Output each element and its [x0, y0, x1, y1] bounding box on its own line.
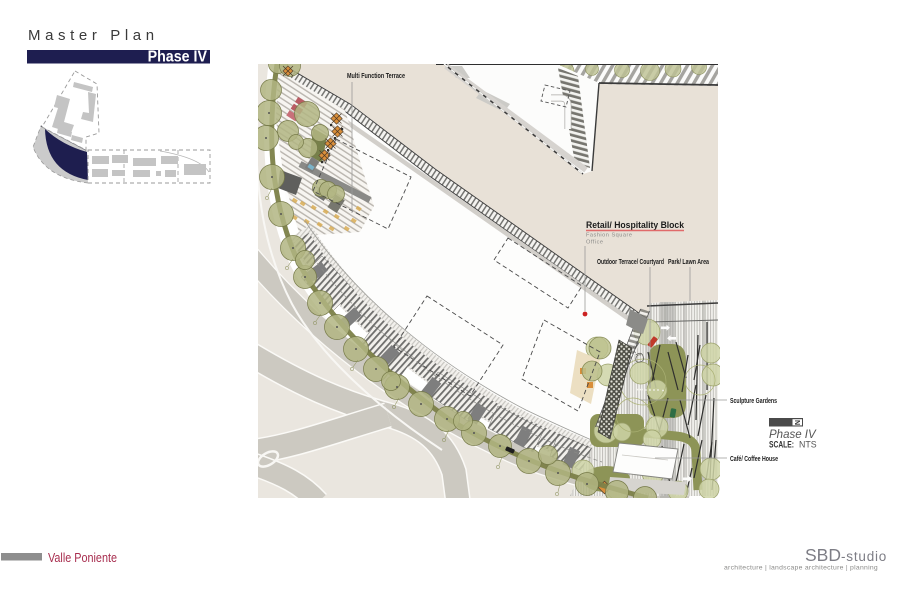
svg-text:Fashion Square: Fashion Square — [586, 233, 633, 239]
svg-text:Park/ Lawn Area: Park/ Lawn Area — [668, 257, 710, 266]
svg-text:NTS: NTS — [799, 440, 817, 450]
svg-text:Retail/ Hospitality Block: Retail/ Hospitality Block — [586, 220, 685, 230]
svg-text:Valle Poniente: Valle Poniente — [48, 551, 117, 565]
svg-text:Café/ Coffee House: Café/ Coffee House — [730, 454, 778, 463]
svg-text:Outdoor Terrace/ Courtyard: Outdoor Terrace/ Courtyard — [597, 257, 664, 266]
svg-text:Sculpture Gardens: Sculpture Gardens — [730, 396, 777, 405]
svg-text:Multi Function Terrace: Multi Function Terrace — [347, 71, 405, 80]
svg-text:Office: Office — [586, 240, 604, 246]
svg-text:Phase IV: Phase IV — [148, 49, 207, 66]
svg-text:Master Plan: Master Plan — [28, 27, 159, 44]
svg-text:architecture | landscape archi: architecture | landscape architecture | … — [724, 565, 878, 572]
svg-text:SBD-studio: SBD-studio — [805, 545, 887, 565]
svg-text:SCALE:: SCALE: — [769, 440, 794, 450]
svg-text:N: N — [793, 420, 800, 425]
